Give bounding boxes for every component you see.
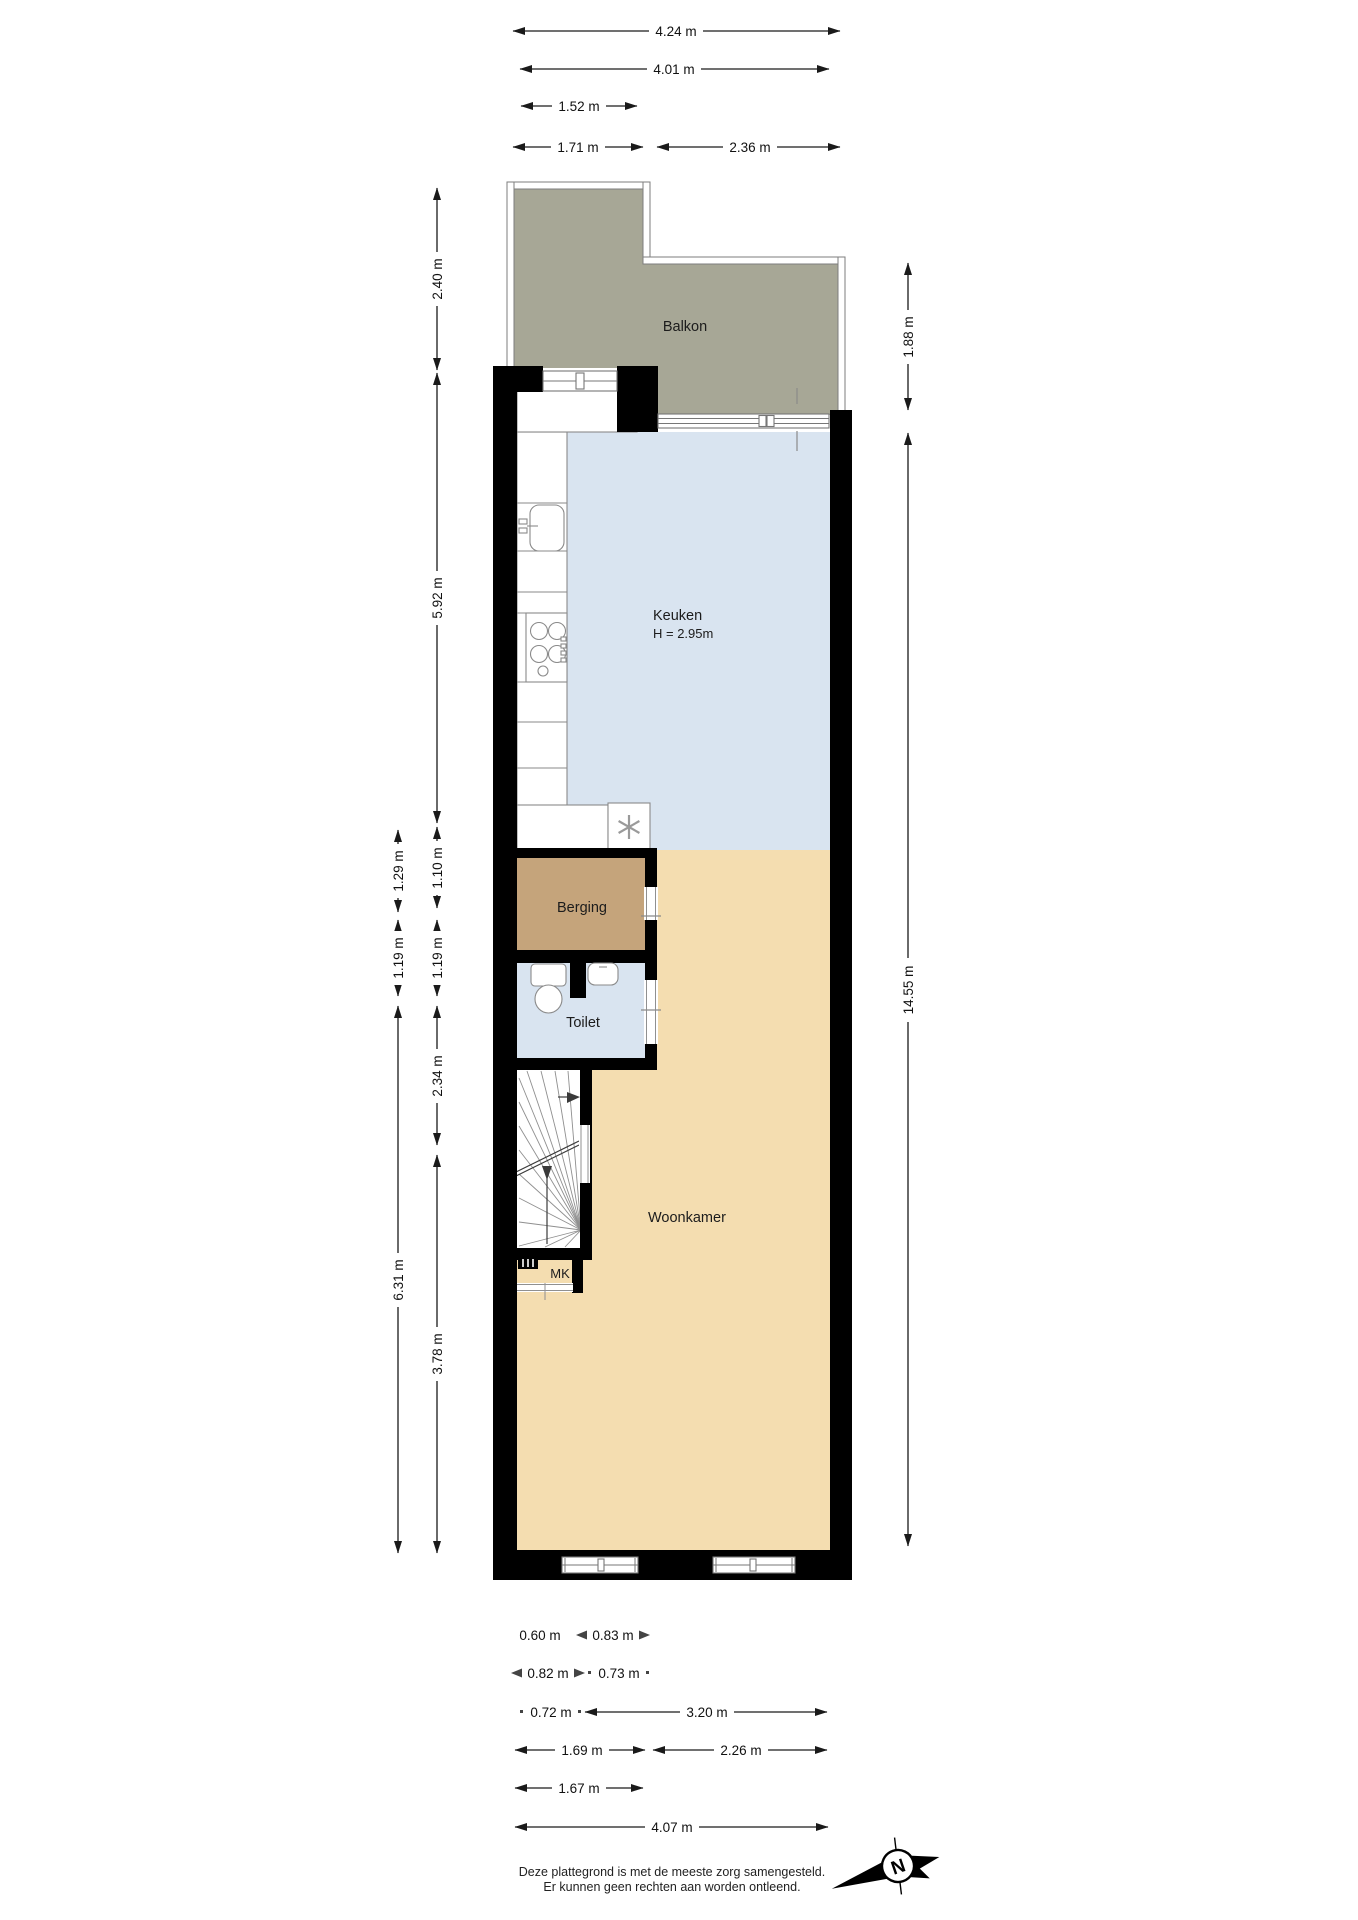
sink-basin <box>530 505 564 551</box>
stove-knob <box>561 651 566 655</box>
dimension: 1.88 m <box>900 263 917 410</box>
dimension-label: 2.40 m <box>430 258 445 299</box>
kitchen-balcony-window <box>658 414 829 428</box>
balcony-label: Balkon <box>663 319 707 335</box>
dimension: 0.82 m <box>511 1666 585 1681</box>
wall-left <box>493 366 517 1580</box>
dimensions-bottom: 0.60 m 0.83 m 0.82 m 0.73 m 0.72 m 3.20 … <box>511 1628 828 1836</box>
basin-body <box>588 963 618 985</box>
dimension-label: 1.52 m <box>558 99 599 114</box>
toilet-wall-bottom <box>517 1058 657 1070</box>
dimension-label: 5.92 m <box>430 577 445 618</box>
dimension-label: 3.20 m <box>686 1705 727 1720</box>
dimension-label: 1.10 m <box>430 847 445 888</box>
dimension-label: 1.88 m <box>901 316 916 357</box>
dimensions-right: 1.88 m 14.55 m <box>900 263 917 1546</box>
dimension: 1.71 m <box>513 139 643 156</box>
dimensions-left-inner: 2.40 m 5.92 m 1.10 m 1.19 m 2.34 m 3.78 … <box>429 188 446 1553</box>
sink-tap-handle <box>519 528 527 533</box>
wc-bowl <box>535 985 562 1013</box>
livingroom-label: Woonkamer <box>648 1210 726 1226</box>
dimension: 4.07 m <box>515 1819 828 1836</box>
dimension-label: 1.29 m <box>391 850 406 891</box>
wall-bottom <box>493 1550 852 1580</box>
sink-tap-handle <box>519 519 527 524</box>
meter-panel-icon <box>518 1257 538 1269</box>
dimension: 2.26 m <box>653 1742 827 1759</box>
dimension: 1.29 m <box>390 830 407 912</box>
wall-top-left-corner <box>493 366 543 392</box>
dimensions-left-outer: 1.29 m 1.19 m 6.31 m <box>390 830 407 1553</box>
disclaimer-line-2: Er kunnen geen rechten aan worden ontlee… <box>543 1880 800 1894</box>
compass-needle-west <box>829 1861 890 1897</box>
dimension: 1.67 m <box>515 1780 643 1797</box>
hand-basin-icon <box>588 963 618 985</box>
kitchen-height-label: H = 2.95m <box>653 626 713 641</box>
mk-label: MK <box>550 1266 570 1281</box>
dimension-label: 6.31 m <box>391 1259 406 1300</box>
dimension-label: 4.07 m <box>651 1820 692 1835</box>
storage-wall-bottom <box>517 950 657 963</box>
dimension: 6.31 m <box>390 1006 407 1553</box>
storage-room: Berging <box>517 848 661 963</box>
dimension: 3.20 m <box>585 1704 827 1721</box>
stove-burner <box>531 623 548 640</box>
dimension: 1.69 m <box>515 1742 645 1759</box>
washing-machine-icon <box>608 803 650 850</box>
stove-knob <box>561 644 566 648</box>
storage-wall-top <box>517 848 657 858</box>
dimension: 2.36 m <box>657 139 840 156</box>
balcony-railing-step-vertical <box>643 182 650 264</box>
dimension: 14.55 m <box>900 433 917 1546</box>
dimension-label: 1.19 m <box>391 937 406 978</box>
dimension: 3.78 m <box>429 1155 446 1553</box>
wall-top-center-block <box>617 366 658 432</box>
floorplan-drawing: Balkon <box>0 0 1358 1920</box>
stove-burner <box>531 646 548 663</box>
dimension: 0.73 m <box>588 1666 649 1681</box>
floorplan-page: Balkon <box>0 0 1358 1920</box>
dimension-label: 2.34 m <box>430 1055 445 1096</box>
balcony-railing-left <box>507 182 514 368</box>
balcony-floor-upper <box>514 189 643 368</box>
dimension: 2.34 m <box>429 1006 446 1145</box>
toilet-room: Toilet <box>517 950 661 1070</box>
balcony-railing-right <box>838 257 845 415</box>
disclaimer-line-1: Deze plattegrond is met de meeste zorg s… <box>519 1865 825 1879</box>
compass-icon: N <box>823 1826 947 1915</box>
stove-icon <box>526 613 567 682</box>
dimension: 4.24 m <box>513 23 840 40</box>
dimension-label: 0.60 m <box>519 1628 560 1643</box>
living-window-left <box>562 1557 638 1573</box>
dimension-label: 2.26 m <box>720 1743 761 1758</box>
wall-right <box>830 410 852 1580</box>
toilet-partition-stub <box>570 950 586 998</box>
dimension-label: 0.72 m <box>530 1705 571 1720</box>
dimension: 1.52 m <box>521 98 637 115</box>
stove-burner-small <box>538 666 548 676</box>
dimension-label: 4.01 m <box>653 62 694 77</box>
counter-bottom-row <box>517 805 608 850</box>
wc-tank <box>531 964 566 986</box>
dimension-label: 4.24 m <box>655 24 696 39</box>
dimension: 0.72 m <box>520 1705 581 1720</box>
dimension-label: 1.69 m <box>561 1743 602 1758</box>
dimension: 0.83 m <box>576 1628 650 1643</box>
dimension: 5.92 m <box>429 373 446 823</box>
kitchen-label: Keuken <box>653 608 702 624</box>
dimension-label: 0.83 m <box>592 1628 633 1643</box>
balcony-railing-step-horizontal <box>643 257 845 264</box>
dimension-label: 1.71 m <box>557 140 598 155</box>
storage-label: Berging <box>557 900 607 916</box>
stove-knob <box>561 658 566 662</box>
footer: Deze plattegrond is met de meeste zorg s… <box>519 1865 825 1894</box>
staircase <box>516 1070 592 1260</box>
dimension: 4.01 m <box>520 61 829 78</box>
balcony-floor-lower <box>643 264 838 415</box>
living-window-right <box>713 1557 795 1573</box>
dimension: 1.10 m <box>429 827 446 908</box>
dimension-label: 3.78 m <box>430 1333 445 1374</box>
dimension-label: 0.82 m <box>527 1666 568 1681</box>
balcony-railing-top <box>507 182 650 189</box>
dimension: 1.19 m <box>390 920 407 996</box>
dimension: 1.19 m <box>429 920 446 996</box>
dimension-label: 1.19 m <box>430 937 445 978</box>
dimension: 2.40 m <box>429 188 446 370</box>
dimension: 0.60 m <box>519 1628 560 1643</box>
dimension-label: 1.67 m <box>558 1781 599 1796</box>
dimensions-top: 4.24 m 4.01 m 1.52 m 1.71 m 2.36 m <box>513 23 840 156</box>
stove-knob <box>561 637 566 641</box>
balcony-window <box>543 371 617 391</box>
mk-wall-right <box>572 1248 583 1293</box>
dimension-label: 14.55 m <box>901 966 916 1015</box>
toilet-label: Toilet <box>566 1015 600 1031</box>
dimension-label: 2.36 m <box>729 140 770 155</box>
dimension-label: 0.73 m <box>598 1666 639 1681</box>
